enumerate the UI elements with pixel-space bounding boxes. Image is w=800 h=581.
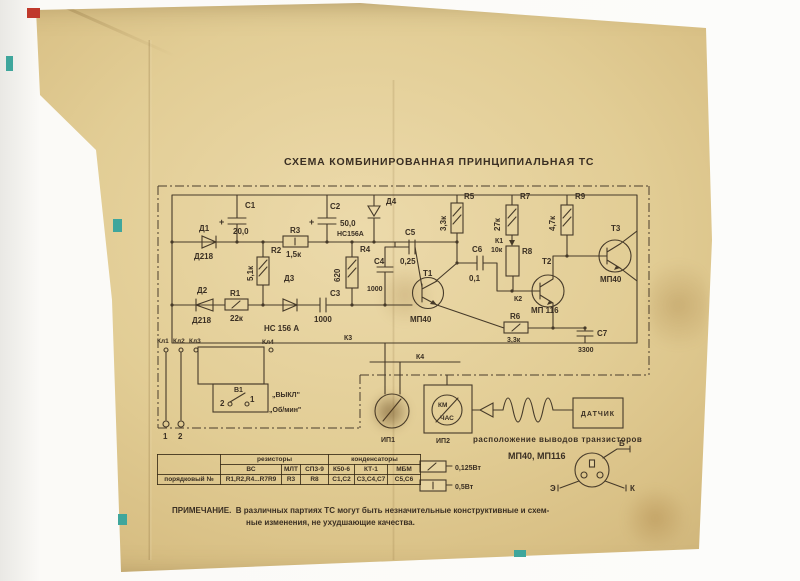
label-r9-value: 4,7к bbox=[548, 215, 557, 231]
note-body1: В различных партиях ТС могут быть незнач… bbox=[236, 506, 550, 515]
label-hc-bottom: НС 156 А bbox=[264, 324, 299, 333]
circuit-diagram: Д1 Д218 + С1 20,0 R2 5,1к R3 1,5к Д3 Д2 … bbox=[0, 0, 800, 581]
label-r8: R8 bbox=[522, 247, 533, 256]
note-line2: ные изменения, не ухудшающие качества. bbox=[246, 517, 654, 529]
label-r6-value: 3,3к bbox=[507, 337, 521, 344]
label-pin-e: Э bbox=[550, 484, 556, 493]
label-sw-off: „ВЫКЛ" bbox=[272, 392, 300, 399]
label-dial-top: КМ bbox=[438, 402, 447, 409]
teal-mark bbox=[514, 550, 526, 557]
transistor-pinout bbox=[558, 446, 630, 491]
label-k2: К2 bbox=[514, 296, 522, 303]
label-c1-value: 20,0 bbox=[233, 227, 249, 236]
label-r5: R5 bbox=[464, 192, 475, 201]
label-c2: С2 bbox=[330, 202, 341, 211]
label-d4: Д4 bbox=[386, 197, 397, 206]
table-item-4: С3,С4,С7 bbox=[355, 475, 388, 485]
table-type-vs: ВС bbox=[221, 465, 282, 475]
label-c2-plus: + bbox=[309, 217, 314, 227]
label-c3-value: 1000 bbox=[314, 315, 332, 324]
table-type-sp3: СП3-9 bbox=[301, 465, 329, 475]
label-c7-value: 3300 bbox=[578, 347, 594, 354]
label-r2-value: 5,1к bbox=[246, 265, 255, 281]
capacitor-c7 bbox=[577, 331, 593, 336]
label-d1: Д1 bbox=[199, 224, 210, 233]
label-r5-value: 3,3к bbox=[439, 215, 448, 231]
label-k3: К3 bbox=[344, 335, 352, 342]
label-pinout-types: МП40, МП116 bbox=[508, 451, 565, 461]
red-mark bbox=[27, 8, 40, 18]
teal-mark bbox=[118, 514, 127, 525]
transistor-t1 bbox=[413, 278, 444, 309]
capacitor-c2 bbox=[318, 218, 336, 224]
label-r1: R1 bbox=[230, 289, 241, 298]
label-r4: R4 bbox=[360, 245, 371, 254]
label-k4: К4 bbox=[416, 354, 424, 361]
label-kl3: Кл3 bbox=[189, 338, 201, 345]
resistor-r2 bbox=[257, 257, 269, 285]
label-c7: С7 bbox=[597, 329, 608, 338]
label-pinout-caption: расположение выводов транзисторов bbox=[473, 435, 642, 444]
label-kl1: Кл1 bbox=[157, 338, 169, 345]
table-item-3: С1,С2 bbox=[329, 475, 355, 485]
label-t3-type: МП40 bbox=[600, 275, 622, 284]
resistor-r3 bbox=[283, 236, 308, 247]
scanner-background: СХЕМА КОМБИНИРОВАННАЯ ПРИНЦИПИАЛЬНАЯ ТС bbox=[0, 0, 800, 581]
teal-mark bbox=[6, 56, 13, 71]
capacitor-c6 bbox=[477, 256, 483, 270]
capacitor-c4 bbox=[377, 267, 393, 272]
meter-ip1 bbox=[375, 394, 409, 428]
label-r6: R6 bbox=[510, 312, 521, 321]
label-t3: Т3 bbox=[611, 224, 621, 233]
label-t2: Т2 bbox=[542, 257, 552, 266]
meter-ip2 bbox=[424, 385, 472, 433]
table-item-0: R1,R2,R4...R7R9 bbox=[221, 475, 282, 485]
parts-table: резисторы конденсаторы ВС МЛТ СП3-9 К50-… bbox=[157, 454, 421, 485]
table-type-mbm: МБМ bbox=[388, 465, 421, 475]
label-t1: Т1 bbox=[423, 269, 433, 278]
capacitor-c1 bbox=[228, 218, 246, 224]
label-power-05: 0,5Вт bbox=[455, 484, 474, 491]
label-r1-value: 22к bbox=[230, 314, 244, 323]
diode-d4 bbox=[368, 206, 380, 218]
switch-v1 bbox=[198, 347, 268, 412]
label-term2: 2 bbox=[178, 432, 183, 441]
resistor-r6 bbox=[504, 322, 528, 333]
label-ip1: ИП1 bbox=[381, 437, 395, 444]
power-legend-05 bbox=[420, 480, 452, 491]
table-type-k50: К50-6 bbox=[329, 465, 355, 475]
label-k1: К1 bbox=[495, 238, 503, 245]
label-kl4: Кл4 bbox=[262, 339, 274, 346]
label-d3: Д3 bbox=[284, 274, 295, 283]
label-c5: С5 bbox=[405, 228, 416, 237]
label-d2: Д2 bbox=[197, 286, 208, 295]
label-sw-on: „Об/мин" bbox=[269, 406, 301, 414]
label-c5-value: 0,25 bbox=[400, 257, 416, 266]
label-r2: R2 bbox=[271, 246, 282, 255]
label-ip2: ИП2 bbox=[436, 438, 450, 445]
table-item-5: С5,С6 bbox=[388, 475, 421, 485]
label-pin-k: К bbox=[630, 484, 635, 493]
table-group-capacitors: конденсаторы bbox=[329, 455, 421, 465]
label-t1-type: МП40 bbox=[410, 315, 432, 324]
label-r3-value: 1,5к bbox=[286, 250, 302, 259]
label-sw: В1 bbox=[234, 387, 243, 394]
label-sw-pos1: 1 bbox=[250, 395, 255, 404]
capacitor-c3 bbox=[320, 298, 326, 312]
table-row-label: порядковый № bbox=[158, 475, 221, 485]
table-type-mlt: МЛТ bbox=[282, 465, 301, 475]
resistor-r9 bbox=[561, 205, 573, 235]
paper-sheet: СХЕМА КОМБИНИРОВАННАЯ ПРИНЦИПИАЛЬНАЯ ТС bbox=[0, 0, 800, 581]
resistor-r4 bbox=[346, 257, 358, 288]
terminal-circles bbox=[163, 348, 273, 427]
resistor-r5 bbox=[451, 203, 463, 233]
label-c1-plus: + bbox=[219, 217, 224, 227]
note-text: ПРИМЕЧАНИЕ. В различных партиях ТС могут… bbox=[172, 505, 654, 530]
table-type-kt1: КТ-1 bbox=[355, 465, 388, 475]
label-r7-value: 27к bbox=[493, 217, 502, 231]
label-hc-top: НС156А bbox=[337, 231, 364, 238]
label-r9: R9 bbox=[575, 192, 586, 201]
arrow-icon bbox=[480, 403, 493, 417]
label-c3: С3 bbox=[330, 289, 341, 298]
label-r3: R3 bbox=[290, 226, 301, 235]
table-group-resistors: резисторы bbox=[221, 455, 329, 465]
note-line1: ПРИМЕЧАНИЕ. В различных партиях ТС могут… bbox=[172, 505, 654, 517]
label-c2-value: 50,0 bbox=[340, 219, 356, 228]
label-c1: С1 bbox=[245, 201, 256, 210]
label-sensor: ДАТЧИК bbox=[581, 411, 615, 418]
label-c4: С4 bbox=[374, 257, 385, 266]
label-c6-value: 0,1 bbox=[469, 274, 481, 283]
label-dial-bottom: ЧАС bbox=[440, 415, 454, 422]
table-item-2: R8 bbox=[301, 475, 329, 485]
table-item-1: R3 bbox=[282, 475, 301, 485]
label-kl2: Кл2 bbox=[173, 338, 185, 345]
label-r8-value: 10к bbox=[491, 247, 503, 254]
note-heading: ПРИМЕЧАНИЕ. bbox=[172, 506, 231, 515]
label-c6: С6 bbox=[472, 245, 483, 254]
label-t2-type: МП 116 bbox=[531, 306, 559, 315]
label-d1-type: Д218 bbox=[194, 252, 214, 261]
label-r4-value: 620 bbox=[333, 268, 342, 282]
label-c4-value: 1000 bbox=[367, 286, 383, 293]
label-power-0125: 0,125Вт bbox=[455, 465, 481, 472]
power-legend-0125 bbox=[420, 461, 452, 472]
label-r7: R7 bbox=[520, 192, 531, 201]
table-empty-cell bbox=[158, 455, 221, 475]
cable-coil bbox=[503, 398, 553, 422]
label-sw-pos2: 2 bbox=[220, 399, 225, 408]
label-pin-b: Б bbox=[619, 439, 625, 448]
label-d2-type: Д218 bbox=[192, 316, 212, 325]
resistor-r8-trimmer bbox=[506, 240, 519, 276]
teal-mark bbox=[113, 219, 122, 232]
resistor-r7 bbox=[506, 205, 518, 235]
resistor-r1 bbox=[225, 299, 248, 310]
label-term1: 1 bbox=[163, 432, 168, 441]
